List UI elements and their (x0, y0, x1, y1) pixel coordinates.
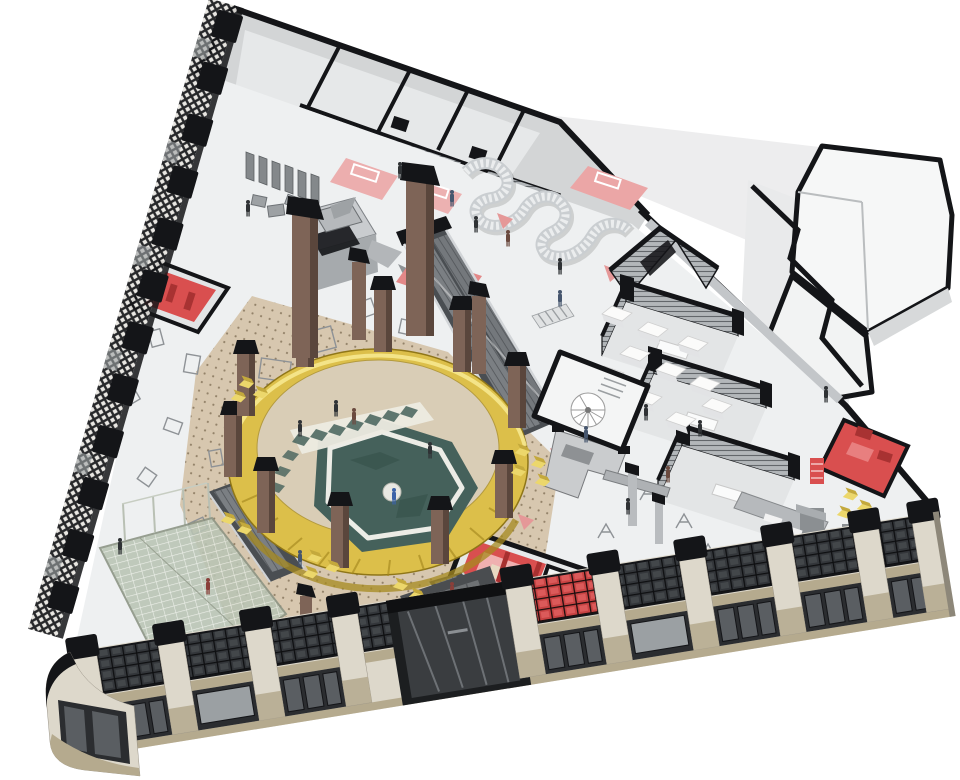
red-backlit-window (530, 570, 598, 623)
architectural-rendering (0, 0, 960, 780)
axonometric-floorplan-svg (0, 0, 960, 780)
